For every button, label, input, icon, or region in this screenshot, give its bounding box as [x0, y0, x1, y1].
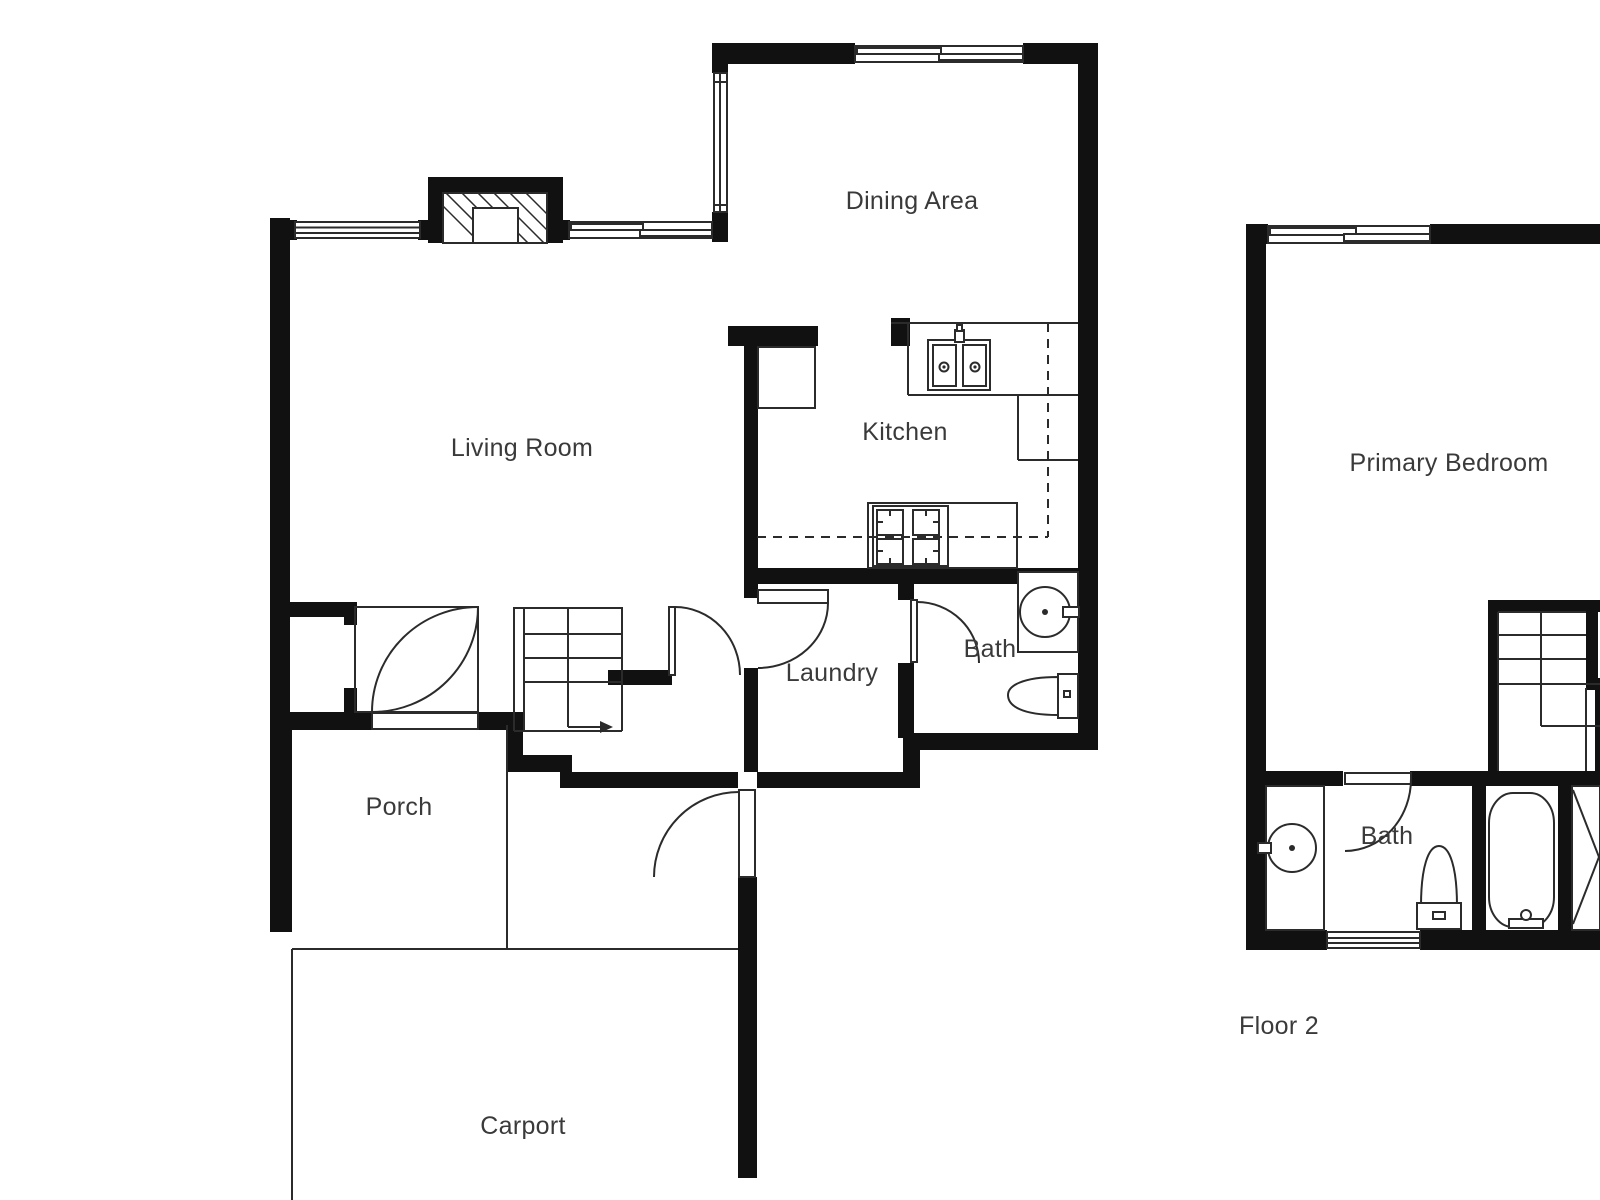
bath2-toilet-fixture: [1417, 846, 1461, 929]
room-label-primary-bedroom: Primary Bedroom: [1350, 449, 1549, 477]
living-window-left: [295, 222, 420, 238]
bedroom-north-window: [1268, 226, 1430, 243]
dining-west-window: [714, 73, 727, 212]
back-door: [654, 790, 755, 877]
floor1-bath-fixtures: [1008, 572, 1079, 718]
stove-fixture: [868, 503, 1017, 568]
dining-north-window: [855, 46, 1023, 62]
room-label-laundry: Laundry: [786, 659, 879, 687]
floor-plan-page: Dining Area Living Room Kitchen Laundry …: [0, 0, 1600, 1200]
room-label-bath1: Bath: [964, 635, 1017, 663]
room-label-carport: Carport: [480, 1112, 565, 1140]
stairs-floor2: [1498, 612, 1600, 771]
stairs-floor1: [514, 607, 622, 733]
floor2-caption: Floor 2: [1239, 1012, 1319, 1040]
room-label-living: Living Room: [451, 434, 593, 462]
linen-closet: [1572, 786, 1600, 930]
bath1-vanity-sink-fixture: [1018, 572, 1079, 652]
bath1-toilet-fixture: [1008, 674, 1078, 718]
kitchen-sink-fixture: [928, 325, 990, 390]
laundry-door: [758, 590, 828, 668]
room-label-kitchen: Kitchen: [862, 418, 948, 446]
floor-plan-canvas: Dining Area Living Room Kitchen Laundry …: [0, 0, 1600, 1200]
room-label-dining: Dining Area: [846, 187, 979, 215]
room-label-porch: Porch: [366, 793, 433, 821]
firebox: [473, 208, 518, 243]
entry-threshold: [372, 713, 478, 729]
floor2-bath-fixtures: [1258, 773, 1600, 930]
entry-door: [355, 607, 478, 729]
bath2-south-window: [1327, 932, 1420, 948]
living-window-right: [569, 222, 712, 238]
bath2-vanity-sink-fixture: [1258, 786, 1324, 930]
hall-closet-door: [669, 607, 740, 675]
room-label-bath2: Bath: [1361, 822, 1414, 850]
bathtub-fixture: [1489, 793, 1554, 928]
fridge: [758, 347, 815, 408]
floor1-doors: [355, 590, 979, 877]
